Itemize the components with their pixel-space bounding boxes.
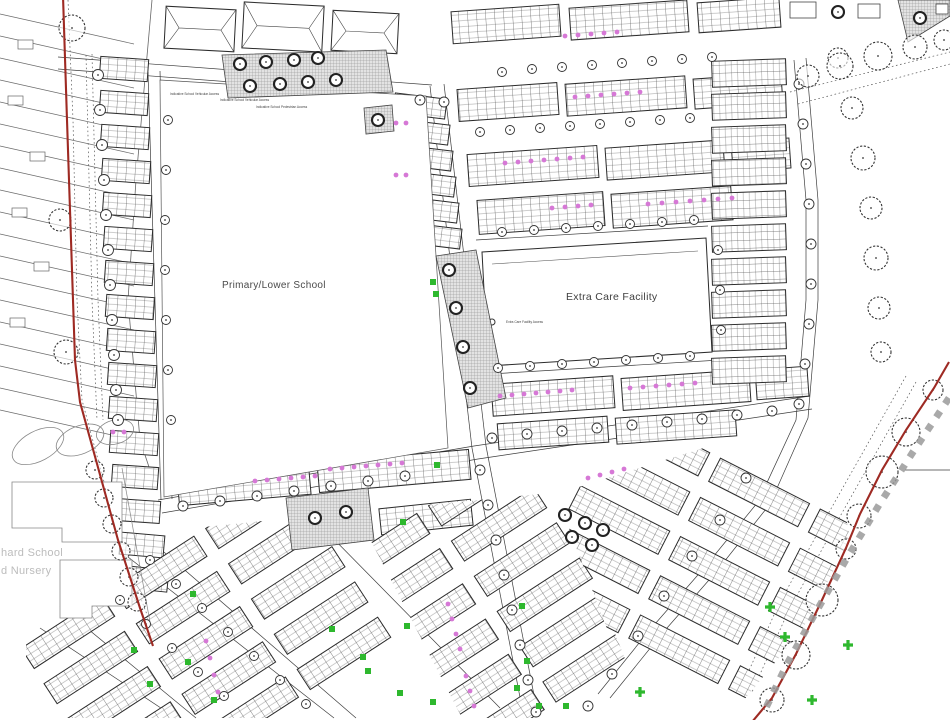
tree-center-dot (529, 365, 531, 367)
tree-center-dot (293, 490, 295, 492)
tree-canopy-icon (708, 53, 717, 62)
tree-canopy-icon (536, 124, 545, 133)
green-unit-marker (131, 647, 137, 653)
terrace-row (712, 158, 787, 187)
pink-unit-marker (589, 203, 594, 208)
tree-center-dot (587, 705, 589, 707)
pink-unit-marker (622, 467, 627, 472)
tree-canopy-icon (597, 524, 609, 536)
tree-center-dot (495, 539, 497, 541)
tree-center-dot (109, 284, 111, 286)
tree-canopy-icon (586, 539, 598, 551)
tree-canopy-icon (717, 326, 726, 335)
pink-unit-marker (612, 92, 617, 97)
pink-unit-marker (503, 161, 508, 166)
tree-canopy-icon (309, 512, 321, 524)
pink-unit-marker (542, 158, 547, 163)
tree-center-dot (535, 711, 537, 713)
tree-center-dot (919, 17, 921, 19)
tree-canopy-icon (794, 399, 804, 409)
tree-canopy-icon (93, 70, 104, 81)
tree-center-dot (227, 631, 229, 633)
tree-canopy-icon (832, 6, 844, 18)
pink-unit-marker (352, 465, 357, 470)
tree-center-dot (914, 46, 916, 48)
tree-center-dot (165, 169, 167, 171)
existing-landscape-outline (6, 420, 70, 473)
tree-center-dot (804, 363, 806, 365)
tree-center-dot (810, 283, 812, 285)
tree-canopy-icon (95, 105, 106, 116)
green-plus-marker (843, 640, 853, 650)
tree-canopy-icon (658, 218, 667, 227)
tree-center-dot (943, 39, 945, 41)
tree-center-dot (115, 389, 117, 391)
tree-canopy-icon (864, 246, 888, 270)
tree-center-dot (808, 203, 810, 205)
tree-center-dot (564, 514, 566, 516)
tree-center-dot (659, 119, 661, 121)
tree-canopy-icon (827, 53, 853, 79)
label-offsite-school-line1: hard School (1, 547, 63, 559)
tree-canopy-icon (526, 362, 535, 371)
tree-center-dot (265, 61, 267, 63)
green-unit-marker (433, 291, 439, 297)
tree-center-dot (851, 107, 853, 109)
tree-center-dot (880, 351, 882, 353)
tree-center-dot (167, 369, 169, 371)
green-unit-marker (397, 690, 403, 696)
tree-center-dot (701, 418, 703, 420)
tree-center-dot (807, 75, 809, 77)
tree-canopy-icon (618, 59, 627, 68)
tree-center-dot (182, 505, 184, 507)
tree-center-dot (531, 68, 533, 70)
tree-center-dot (479, 131, 481, 133)
pink-unit-marker (693, 381, 698, 386)
tree-center-dot (455, 307, 457, 309)
tree-canopy-icon (633, 631, 643, 641)
tree-center-dot (681, 58, 683, 60)
tree-canopy-icon (172, 580, 181, 589)
pink-unit-marker (454, 632, 459, 637)
tree-canopy-icon (443, 264, 455, 276)
tree-canopy-icon (522, 429, 532, 439)
tree-center-dot (105, 214, 107, 216)
tree-canopy-icon (164, 116, 173, 125)
tree-center-dot (175, 583, 177, 585)
tree-center-dot (611, 673, 613, 675)
tree-canopy-icon (579, 517, 591, 529)
offsite-shed-outline (30, 152, 45, 161)
pink-unit-marker (394, 173, 399, 178)
terrace-row (477, 192, 605, 235)
pink-unit-marker (570, 388, 575, 393)
pink-unit-marker (277, 477, 282, 482)
tree-canopy-icon (234, 58, 246, 70)
tree-canopy-icon (499, 570, 509, 580)
tree-center-dot (666, 421, 668, 423)
tree-center-dot (533, 229, 535, 231)
tree-canopy-icon (99, 175, 110, 186)
tree-canopy-icon (686, 114, 695, 123)
tree-center-dot (65, 351, 67, 353)
footpath-dotted-line (798, 64, 950, 104)
tree-center-dot (565, 227, 567, 229)
tree-center-dot (878, 307, 880, 309)
tree-canopy-icon (215, 496, 225, 506)
offsite-shed-outline (34, 262, 49, 271)
tree-canopy-icon (340, 506, 352, 518)
tree-center-dot (798, 83, 800, 85)
pink-unit-marker (599, 93, 604, 98)
tree-canopy-icon (626, 118, 635, 127)
tree-canopy-icon (260, 56, 272, 68)
tree-canopy-icon (797, 65, 819, 87)
tree-canopy-icon (372, 114, 384, 126)
terrace-row (491, 376, 615, 416)
tree-center-dot (501, 231, 503, 233)
pink-unit-marker (674, 200, 679, 205)
green-unit-marker (434, 462, 440, 468)
pink-unit-marker (212, 673, 217, 678)
tree-center-dot (97, 74, 99, 76)
tree-center-dot (663, 595, 665, 597)
tree-center-dot (596, 427, 598, 429)
tree-center-dot (569, 125, 571, 127)
tree-canopy-icon (558, 360, 567, 369)
tree-canopy-icon (648, 57, 657, 66)
tree-canopy-icon (596, 120, 605, 129)
tree-center-dot (717, 249, 719, 251)
pink-unit-marker (364, 464, 369, 469)
green-unit-marker (211, 697, 217, 703)
tree-canopy-icon (588, 61, 597, 70)
pink-unit-marker (534, 391, 539, 396)
pink-unit-marker (550, 206, 555, 211)
tree-center-dot (511, 609, 513, 611)
tree-canopy-icon (457, 341, 469, 353)
tree-center-dot (462, 346, 464, 348)
terrace-row (712, 356, 787, 385)
green-unit-marker (430, 699, 436, 705)
tree-canopy-icon (178, 501, 188, 511)
terrace-row (712, 125, 787, 154)
terrace-row (109, 430, 158, 455)
site-plan-canvas: Primary/Lower School Extra Care Facility… (0, 0, 950, 720)
tree-center-dot (107, 249, 109, 251)
tree-canopy-icon (476, 128, 485, 137)
tree-canopy-icon (507, 605, 517, 615)
tree-canopy-icon (274, 78, 286, 90)
tree-canopy-icon (312, 52, 324, 64)
tree-center-dot (443, 101, 445, 103)
green-unit-marker (190, 591, 196, 597)
tree-center-dot (584, 522, 586, 524)
tree-center-dot (249, 85, 251, 87)
tree-canopy-icon (276, 676, 285, 685)
tree-canopy-icon (800, 359, 810, 369)
tree-canopy-outline (934, 30, 950, 50)
pink-unit-marker (568, 156, 573, 161)
tree-center-dot (877, 55, 879, 57)
tree-canopy-icon (903, 35, 927, 59)
tree-center-dot (661, 221, 663, 223)
green-unit-marker (519, 603, 525, 609)
tree-center-dot (602, 529, 604, 531)
pink-unit-marker (122, 430, 127, 435)
tree-canopy-icon (475, 465, 485, 475)
tree-center-dot (71, 27, 73, 29)
tree-center-dot (629, 223, 631, 225)
tree-center-dot (711, 56, 713, 58)
tree-canopy-icon (806, 239, 816, 249)
pink-unit-marker (654, 384, 659, 389)
pink-unit-marker (625, 91, 630, 96)
green-unit-marker (365, 668, 371, 674)
tree-canopy-icon (363, 476, 373, 486)
tree-center-dot (501, 71, 503, 73)
tree-canopy-icon (288, 54, 300, 66)
label-school-vehicular-access-2: Indicative School Vehicular Access (220, 98, 269, 102)
tree-center-dot (802, 123, 804, 125)
tree-center-dot (307, 81, 309, 83)
tree-canopy-icon (590, 358, 599, 367)
tree-canopy-icon (678, 55, 687, 64)
label-school-pedestrian-access: Indicative School Pedestrian Access (256, 105, 308, 109)
tree-center-dot (377, 119, 379, 121)
tree-canopy-icon (198, 604, 207, 613)
pink-unit-marker (730, 196, 735, 201)
tree-center-dot (571, 536, 573, 538)
tree-canopy-icon (111, 385, 122, 396)
play-area-outline (858, 4, 880, 18)
label-school-vehicular-access-1: Indicative School Vehicular Access (170, 92, 219, 96)
tree-canopy-icon (654, 354, 663, 363)
green-unit-marker (360, 654, 366, 660)
pink-unit-marker (660, 201, 665, 206)
pink-unit-marker (680, 382, 685, 387)
tree-center-dot (509, 129, 511, 131)
terrace-row (569, 0, 689, 40)
tree-center-dot (117, 419, 119, 421)
tree-center-dot (689, 117, 691, 119)
tree-canopy-icon (732, 410, 742, 420)
tree-center-dot (170, 419, 172, 421)
tree-center-dot (367, 480, 369, 482)
tree-canopy-icon (162, 316, 171, 325)
tree-canopy-icon (767, 406, 777, 416)
tree-canopy-icon (626, 220, 635, 229)
tree-canopy-icon (659, 591, 669, 601)
tree-canopy-icon (97, 140, 108, 151)
terrace-row (467, 146, 599, 187)
tree-center-dot (491, 437, 493, 439)
masterplan-drawing: Primary/Lower School Extra Care Facility… (0, 0, 950, 720)
tree-center-dot (689, 355, 691, 357)
tree-canopy-icon (168, 644, 177, 653)
tree-center-dot (201, 607, 203, 609)
tree-canopy-icon (530, 226, 539, 235)
green-unit-marker (514, 685, 520, 691)
tree-center-dot (317, 57, 319, 59)
tree-center-dot (119, 599, 121, 601)
tree-center-dot (113, 354, 115, 356)
tree-center-dot (593, 361, 595, 363)
tree-canopy-icon (164, 366, 173, 375)
tree-center-dot (293, 59, 295, 61)
tree-center-dot (149, 559, 151, 561)
pink-unit-marker (628, 386, 633, 391)
tree-canopy-icon (450, 302, 462, 314)
tree-canopy-icon (627, 420, 637, 430)
terrace-row (712, 92, 787, 121)
tree-canopy-icon (116, 596, 125, 605)
tree-canopy-icon (302, 76, 314, 88)
tree-center-dot (164, 219, 166, 221)
green-unit-marker (400, 519, 406, 525)
pink-unit-marker (529, 159, 534, 164)
tree-canopy-icon (594, 222, 603, 231)
tree-center-dot (621, 62, 623, 64)
tree-canopy-icon (167, 416, 176, 425)
green-plus-marker (635, 687, 645, 697)
pink-unit-marker (602, 31, 607, 36)
tree-canopy-icon (622, 356, 631, 365)
tree-center-dot (223, 695, 225, 697)
tree-center-dot (810, 243, 812, 245)
tree-canopy-icon (528, 65, 537, 74)
tree-center-dot (745, 477, 747, 479)
tree-center-dot (561, 430, 563, 432)
tree-canopy-icon (914, 12, 926, 24)
green-unit-marker (524, 658, 530, 664)
tree-canopy-icon (464, 382, 476, 394)
pink-unit-marker (702, 198, 707, 203)
tree-center-dot (404, 475, 406, 477)
tree-canopy-icon (161, 266, 170, 275)
terrace-row (712, 257, 787, 286)
tree-canopy-icon (498, 228, 507, 237)
terrace-row (565, 76, 687, 116)
pink-unit-marker (615, 30, 620, 35)
hip-roof-block (242, 2, 324, 52)
tree-canopy-icon (49, 209, 71, 231)
pink-unit-marker (586, 94, 591, 99)
green-unit-marker (536, 703, 542, 709)
tree-center-dot (719, 519, 721, 521)
tree-center-dot (487, 504, 489, 506)
tree-center-dot (345, 511, 347, 513)
tree-canopy-icon (194, 668, 203, 677)
tree-canopy-icon (558, 63, 567, 72)
pink-unit-marker (563, 205, 568, 210)
tree-canopy-icon (557, 426, 567, 436)
tree-center-dot (239, 63, 241, 65)
label-offsite-school-line2: d Nursery (1, 565, 52, 577)
pink-unit-marker (510, 393, 515, 398)
play-area-outline (936, 4, 948, 14)
green-unit-marker (185, 659, 191, 665)
pink-unit-marker (716, 197, 721, 202)
pink-unit-marker (328, 467, 333, 472)
tree-center-dot (651, 60, 653, 62)
tree-center-dot (657, 357, 659, 359)
tree-center-dot (219, 500, 221, 502)
tree-canopy-icon (515, 640, 525, 650)
tree-canopy-icon (494, 364, 503, 373)
pink-unit-marker (688, 199, 693, 204)
tree-canopy-icon (583, 701, 593, 711)
tree-center-dot (164, 269, 166, 271)
tree-canopy-icon (741, 473, 751, 483)
terrace-row (99, 90, 148, 115)
tree-center-dot (94, 469, 96, 471)
tree-center-dot (526, 433, 528, 435)
tree-center-dot (503, 574, 505, 576)
pink-unit-marker (301, 475, 306, 480)
hip-roof-block (164, 6, 236, 52)
tree-canopy-icon (224, 628, 233, 637)
offsite-shed-outline (12, 208, 27, 217)
pink-unit-marker (573, 95, 578, 100)
tree-canopy-icon (400, 471, 410, 481)
pink-unit-marker (400, 461, 405, 466)
tree-canopy-icon (851, 146, 875, 170)
tree-canopy-icon (498, 68, 507, 77)
pink-unit-marker (641, 385, 646, 390)
tree-center-dot (862, 157, 864, 159)
tree-center-dot (561, 66, 563, 68)
tree-center-dot (279, 83, 281, 85)
tree-center-dot (875, 257, 877, 259)
pink-unit-marker (667, 383, 672, 388)
tree-canopy-icon (105, 280, 116, 291)
tree-canopy-icon (804, 319, 814, 329)
tree-canopy-icon (109, 350, 120, 361)
tree-center-dot (597, 225, 599, 227)
pink-unit-marker (313, 474, 318, 479)
tree-center-dot (519, 644, 521, 646)
hip-roof-block (331, 10, 399, 53)
tree-canopy-icon (506, 126, 515, 135)
pink-unit-marker (589, 32, 594, 37)
tree-center-dot (256, 495, 258, 497)
tree-center-dot (870, 207, 872, 209)
pink-unit-marker (404, 121, 409, 126)
tree-canopy-icon (146, 556, 155, 565)
pink-unit-marker (586, 476, 591, 481)
tree-center-dot (808, 323, 810, 325)
green-unit-marker (329, 626, 335, 632)
tree-center-dot (837, 11, 839, 13)
pink-unit-marker (394, 121, 399, 126)
pink-unit-marker (576, 204, 581, 209)
tree-center-dot (497, 367, 499, 369)
pink-unit-marker (216, 690, 221, 695)
pink-unit-marker (388, 462, 393, 467)
tree-center-dot (479, 469, 481, 471)
tree-center-dot (419, 99, 421, 101)
label-extra-care-access: Extra Care Facility Access (506, 320, 543, 324)
pink-unit-marker (516, 160, 521, 165)
pink-unit-marker (598, 473, 603, 478)
tree-canopy-icon (559, 509, 571, 521)
pink-unit-marker (458, 647, 463, 652)
tree-center-dot (171, 647, 173, 649)
tree-canopy-icon (523, 675, 533, 685)
offsite-shed-outline (18, 40, 33, 49)
